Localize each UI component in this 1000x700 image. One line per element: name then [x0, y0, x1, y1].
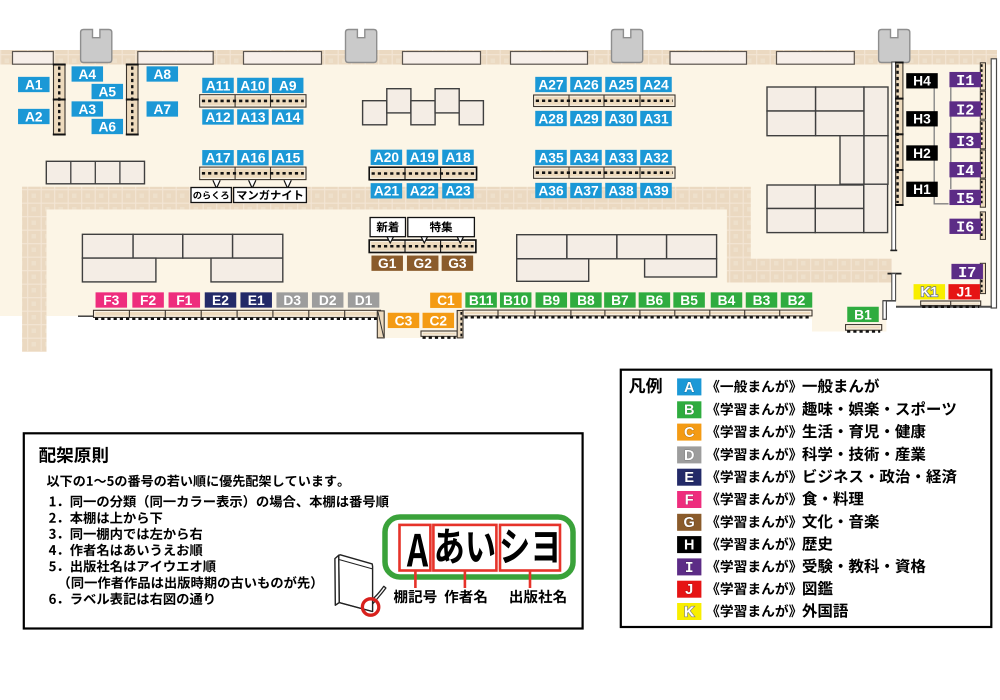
svg-text:A37: A37	[573, 183, 599, 198]
svg-text:A8: A8	[153, 67, 171, 82]
svg-text:B2: B2	[788, 293, 806, 308]
svg-text:I1: I1	[956, 72, 974, 90]
svg-text:F: F	[685, 492, 694, 508]
svg-text:A35: A35	[538, 150, 564, 165]
svg-text:B6: B6	[646, 293, 664, 308]
svg-text:A23: A23	[445, 184, 471, 199]
svg-text:A38: A38	[608, 183, 634, 198]
svg-text:I: I	[685, 561, 694, 577]
svg-text:A2: A2	[25, 109, 43, 124]
svg-text:H1: H1	[913, 182, 931, 197]
svg-text:C: C	[684, 425, 695, 441]
svg-text:B11: B11	[469, 293, 494, 308]
svg-text:A33: A33	[608, 150, 634, 165]
svg-text:E2: E2	[212, 293, 229, 308]
svg-text:I6: I6	[956, 219, 974, 237]
svg-text:C1: C1	[437, 293, 455, 308]
svg-text:E1: E1	[248, 293, 265, 308]
svg-text:A18: A18	[445, 150, 471, 165]
svg-text:B1: B1	[854, 307, 872, 322]
svg-text:A36: A36	[538, 183, 564, 198]
svg-text:B8: B8	[577, 293, 595, 308]
svg-text:A28: A28	[538, 111, 564, 126]
svg-text:I4: I4	[956, 162, 974, 180]
svg-text:K: K	[684, 604, 695, 620]
svg-text:F2: F2	[140, 293, 156, 308]
svg-text:F3: F3	[103, 293, 119, 308]
svg-text:H3: H3	[913, 112, 931, 127]
svg-text:A5: A5	[98, 84, 116, 99]
svg-text:A11: A11	[206, 78, 231, 93]
svg-text:A4: A4	[78, 67, 96, 82]
svg-text:B5: B5	[680, 293, 698, 308]
svg-text:C2: C2	[429, 313, 447, 328]
svg-text:D: D	[684, 448, 694, 464]
svg-text:I5: I5	[956, 190, 974, 208]
svg-text:I3: I3	[956, 133, 974, 151]
svg-text:I2: I2	[956, 101, 974, 119]
svg-text:A26: A26	[573, 77, 599, 92]
svg-text:A29: A29	[573, 111, 599, 126]
svg-text:A15: A15	[275, 151, 301, 166]
svg-text:H4: H4	[913, 74, 931, 89]
svg-text:A24: A24	[643, 77, 669, 92]
svg-text:B7: B7	[611, 293, 629, 308]
svg-text:G1: G1	[378, 256, 397, 271]
svg-text:B3: B3	[753, 293, 771, 308]
svg-text:H: H	[684, 538, 694, 554]
svg-text:A6: A6	[98, 119, 116, 134]
svg-text:A30: A30	[608, 111, 634, 126]
svg-text:J1: J1	[957, 285, 973, 300]
svg-text:A14: A14	[275, 110, 301, 125]
svg-text:A39: A39	[643, 183, 669, 198]
svg-text:A19: A19	[410, 150, 436, 165]
svg-text:A7: A7	[153, 102, 171, 117]
svg-text:B: B	[684, 403, 694, 419]
svg-text:A1: A1	[25, 77, 43, 92]
svg-text:B10: B10	[503, 293, 529, 308]
svg-text:I7: I7	[958, 264, 976, 282]
svg-text:F1: F1	[176, 293, 192, 308]
svg-text:E: E	[684, 470, 694, 486]
svg-text:A13: A13	[240, 110, 266, 125]
svg-text:A: A	[684, 380, 695, 396]
svg-text:D2: D2	[319, 293, 337, 308]
svg-text:K1: K1	[920, 285, 938, 300]
svg-text:J: J	[685, 582, 693, 598]
svg-text:D3: D3	[283, 293, 301, 308]
svg-text:A22: A22	[410, 184, 436, 199]
svg-text:G: G	[684, 515, 695, 531]
svg-text:H2: H2	[913, 146, 931, 161]
svg-text:A16: A16	[240, 151, 266, 166]
svg-text:A31: A31	[643, 111, 669, 126]
svg-text:A25: A25	[608, 77, 634, 92]
svg-text:A20: A20	[374, 150, 400, 165]
svg-text:D1: D1	[355, 293, 373, 308]
svg-text:A10: A10	[240, 78, 266, 93]
svg-text:A12: A12	[205, 110, 231, 125]
svg-text:A9: A9	[279, 78, 297, 93]
svg-text:B4: B4	[718, 293, 736, 308]
svg-text:G3: G3	[448, 256, 467, 271]
svg-text:A3: A3	[78, 102, 96, 117]
svg-text:A32: A32	[643, 150, 669, 165]
svg-text:A17: A17	[205, 151, 231, 166]
svg-text:B9: B9	[542, 293, 560, 308]
svg-text:A34: A34	[573, 150, 599, 165]
svg-text:C3: C3	[395, 313, 413, 328]
svg-text:G2: G2	[413, 256, 432, 271]
svg-text:A21: A21	[374, 184, 400, 199]
svg-text:A27: A27	[538, 77, 564, 92]
